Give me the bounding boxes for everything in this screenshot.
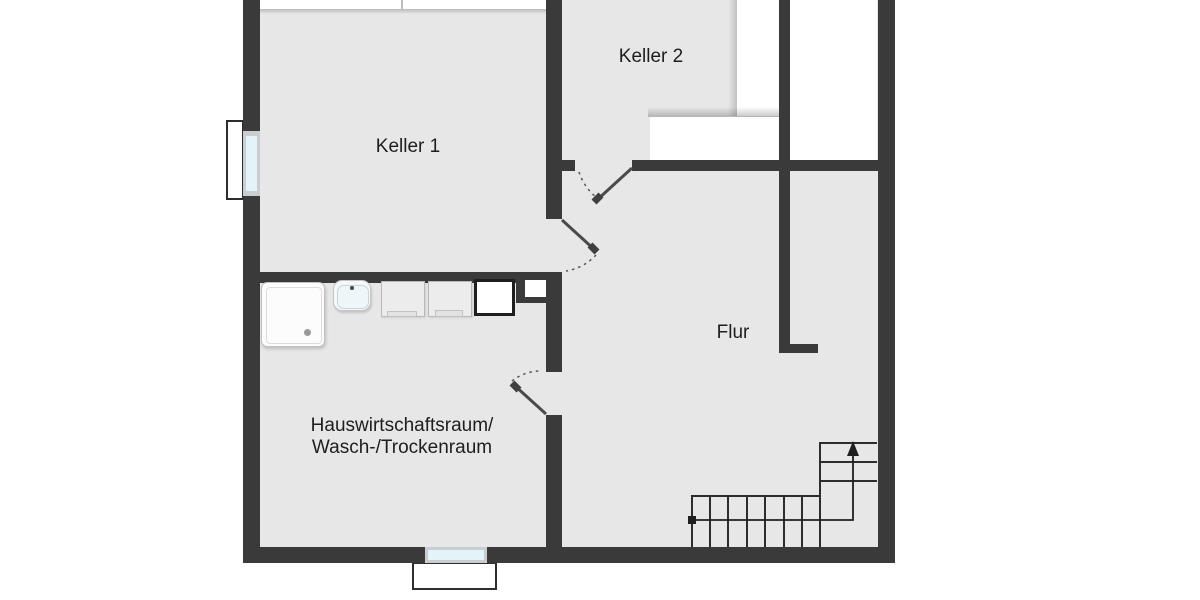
shower-tray-icon [261,282,325,347]
window-left-icon [246,136,257,191]
light-well-left [226,120,244,200]
wall-hwr-flur-lower [546,415,562,548]
wall-keller1-keller2 [546,0,562,219]
wall-keller2-flur-stub [560,160,575,171]
wall-right [878,0,895,563]
shaft-box-icon [474,279,515,316]
light-well-bottom [412,562,497,590]
washing-machine-panel [435,310,463,317]
wall-left-upper [243,0,260,131]
wall-left-lower [243,196,260,563]
wall-bottom-right [487,547,895,563]
floor-plan: Keller 1 Keller 2 Flur Hauswirtschaftsra… [0,0,1200,600]
wall-bottom-left [243,547,425,563]
room-label-hwr-line1: Hauswirtschaftsraum/ [311,415,494,437]
room-label-keller1: Keller 1 [376,136,440,158]
room-label-keller2: Keller 2 [619,46,683,68]
wall-flur-partition [779,0,790,353]
top-window-mullion [401,0,403,9]
window-bottom-icon [428,550,484,560]
washing-machine-icon [428,281,472,317]
white-cutout-top [737,0,780,116]
room-label-hwr: Hauswirtschaftsraum/ Wasch-/Trockenraum [311,415,494,459]
white-room-right [790,0,877,161]
wall-keller2-flur-main [632,160,878,171]
shower-tray-inner [266,287,322,344]
cut-edge-shadow-vertical [728,0,737,116]
top-window-shadow [260,9,546,14]
washing-machine-panel [387,311,417,317]
chimney-flue [525,280,546,297]
washing-machine-icon [381,281,425,317]
sink-icon [333,280,371,311]
top-window-band [260,0,546,9]
wall-flur-partition-foot [779,344,818,353]
sink-faucet [350,286,354,290]
shower-drain [304,329,311,336]
wall-hwr-flur-upper [546,283,562,372]
room-label-hwr-line2: Wasch-/Trockenraum [311,437,494,459]
white-cutout-mid [650,117,780,160]
room-label-flur: Flur [717,322,750,344]
cut-edge-shadow [648,107,780,117]
